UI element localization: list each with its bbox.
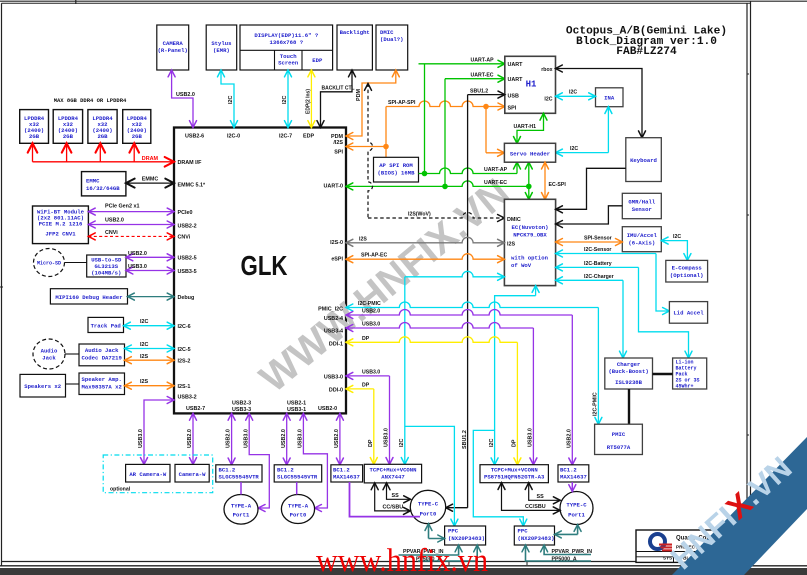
svg-text:TYPE-C: TYPE-C xyxy=(566,502,587,509)
svg-text:DP: DP xyxy=(368,439,374,447)
svg-text:EDP(2 lns): EDP(2 lns) xyxy=(306,89,312,114)
svg-text:SPI-AP-SPI: SPI-AP-SPI xyxy=(388,100,416,106)
svg-text:CAMERA: CAMERA xyxy=(163,40,184,47)
svg-text:TCPC+Mux+VCONN: TCPC+Mux+VCONN xyxy=(370,467,417,474)
svg-text:I2C-6: I2C-6 xyxy=(178,324,191,330)
svg-text:EDP: EDP xyxy=(312,57,323,64)
svg-text:USB2-1: USB2-1 xyxy=(287,401,306,407)
svg-text:I2C-Charger: I2C-Charger xyxy=(584,274,614,280)
svg-text:EDP: EDP xyxy=(303,134,314,140)
svg-text:Stylus: Stylus xyxy=(211,40,232,47)
svg-text:PP5000_A: PP5000_A xyxy=(552,556,577,562)
svg-text:I2C-PMIC: I2C-PMIC xyxy=(593,392,599,416)
svg-text:UART: UART xyxy=(508,77,524,83)
svg-text:Speaker Amp.: Speaker Amp. xyxy=(82,376,122,383)
svg-text:Sensor: Sensor xyxy=(632,206,652,213)
svg-text:RT5077A: RT5077A xyxy=(607,444,631,451)
svg-text:I2C: I2C xyxy=(140,342,148,348)
svg-text:I2C-Sensor: I2C-Sensor xyxy=(584,247,611,253)
svg-text:Track Pad: Track Pad xyxy=(91,322,121,329)
svg-text:EMMC: EMMC xyxy=(142,177,159,183)
svg-text:DDI-0: DDI-0 xyxy=(329,388,343,394)
svg-text:USB2-5: USB2-5 xyxy=(178,256,197,262)
svg-text:CC/SBU: CC/SBU xyxy=(383,505,404,511)
svg-text:(R-Panel): (R-Panel) xyxy=(158,47,188,54)
svg-text:BACKLIT CTL: BACKLIT CTL xyxy=(322,86,355,92)
svg-text:I2S-1: I2S-1 xyxy=(178,384,191,390)
svg-text:Micro-SD: Micro-SD xyxy=(37,261,61,267)
svg-text:UART-AP: UART-AP xyxy=(471,57,495,63)
svg-text:DDI-1: DDI-1 xyxy=(329,342,343,348)
svg-text:CNVi: CNVi xyxy=(105,230,118,236)
svg-text:I2C: I2C xyxy=(489,439,495,447)
svg-text:I2C: I2C xyxy=(228,96,234,104)
svg-text:USB3.0: USB3.0 xyxy=(362,322,380,328)
svg-text:(Optional): (Optional) xyxy=(670,272,704,279)
svg-text:PMIC_I2C: PMIC_I2C xyxy=(318,306,343,312)
svg-text:USB3.0: USB3.0 xyxy=(298,429,304,448)
svg-text:DP: DP xyxy=(512,439,518,447)
svg-text:SS: SS xyxy=(537,494,545,500)
svg-text:USB3-2: USB3-2 xyxy=(178,395,197,401)
svg-text:EMMC 5.1*: EMMC 5.1* xyxy=(178,183,206,189)
svg-text:I2C: I2C xyxy=(544,97,552,103)
svg-text:BC1.2: BC1.2 xyxy=(219,467,236,474)
svg-text:(NX20P3483): (NX20P3483) xyxy=(518,535,555,542)
svg-text:TYPE-C: TYPE-C xyxy=(418,501,439,508)
svg-text:SBU1.2: SBU1.2 xyxy=(470,88,488,94)
svg-text:2GB: 2GB xyxy=(63,133,74,140)
svg-text:Codec DA7219: Codec DA7219 xyxy=(82,355,123,362)
svg-text:EC-SPI: EC-SPI xyxy=(549,182,567,188)
svg-text:DMIC: DMIC xyxy=(380,29,394,36)
svg-text:eSPI: eSPI xyxy=(331,257,343,263)
svg-text:Port0: Port0 xyxy=(420,511,437,518)
svg-text:I2S: I2S xyxy=(140,379,148,385)
svg-text:AP SPI ROM: AP SPI ROM xyxy=(379,162,413,169)
svg-text:USB3.0: USB3.0 xyxy=(243,429,249,448)
svg-text:DISPLAY(EDP)11.6" ?: DISPLAY(EDP)11.6" ? xyxy=(254,32,318,39)
svg-text:CC/SBU: CC/SBU xyxy=(525,504,546,510)
svg-text:USB3-3: USB3-3 xyxy=(232,407,251,413)
svg-text:AR Camera-W: AR Camera-W xyxy=(129,471,167,478)
svg-text:USB2-0: USB2-0 xyxy=(318,406,337,412)
svg-text:USB2-4: USB2-4 xyxy=(324,316,343,322)
svg-text:(BIOS) 16MB: (BIOS) 16MB xyxy=(378,170,416,177)
svg-text:MAX 8GB DDR4 OR LPDDR4: MAX 8GB DDR4 OR LPDDR4 xyxy=(54,97,127,104)
svg-text:BC1.2: BC1.2 xyxy=(333,467,350,474)
svg-text:TYPE-A: TYPE-A xyxy=(288,503,309,510)
svg-text:I2C-Battery: I2C-Battery xyxy=(584,261,612,267)
svg-text:I2C: I2C xyxy=(282,96,288,104)
svg-text:MAX14637: MAX14637 xyxy=(333,474,360,481)
svg-text:USB2-2: USB2-2 xyxy=(178,224,197,230)
svg-text:Audio: Audio xyxy=(41,348,58,355)
svg-text:USB2.0: USB2.0 xyxy=(187,429,193,448)
svg-text:PPC: PPC xyxy=(518,528,529,535)
svg-text:Lid Accel: Lid Accel xyxy=(673,310,704,317)
svg-text:SLGC55545VTR: SLGC55545VTR xyxy=(219,474,260,481)
svg-text:SLGC55545VTR: SLGC55545VTR xyxy=(277,474,318,481)
svg-text:USB3.0: USB3.0 xyxy=(362,369,380,375)
svg-text:UART-EC: UART-EC xyxy=(471,72,494,78)
svg-text:I2S-0: I2S-0 xyxy=(330,240,343,246)
svg-text:Keyboard: Keyboard xyxy=(630,157,657,164)
svg-text:Port1: Port1 xyxy=(568,512,585,519)
svg-text:USB3-0: USB3-0 xyxy=(324,375,343,381)
svg-text:SPI: SPI xyxy=(334,149,343,155)
svg-text:16/32/64GB: 16/32/64GB xyxy=(86,185,120,192)
svg-text:USB2-3: USB2-3 xyxy=(232,401,251,407)
svg-text:I2S: I2S xyxy=(359,236,367,242)
svg-text:PCIe Gen2 x1: PCIe Gen2 x1 xyxy=(105,204,139,210)
svg-text:(EMR): (EMR) xyxy=(213,47,230,54)
svg-text:DMIC: DMIC xyxy=(507,217,521,223)
svg-text:www.hnfix.vn: www.hnfix.vn xyxy=(316,543,488,575)
svg-text:USB2.0: USB2.0 xyxy=(226,429,232,448)
svg-text:USB2.0: USB2.0 xyxy=(334,429,340,448)
svg-text:DP: DP xyxy=(362,382,370,388)
svg-text:PPC: PPC xyxy=(448,528,459,535)
svg-text:TCPC+Mux+VCONN: TCPC+Mux+VCONN xyxy=(491,467,538,474)
svg-text:EMMC: EMMC xyxy=(86,178,100,185)
svg-text:USB3.0: USB3.0 xyxy=(138,429,144,448)
svg-text:USB3.0: USB3.0 xyxy=(528,428,534,447)
svg-text:USB3-5: USB3-5 xyxy=(178,269,197,275)
svg-text:USB2.0: USB2.0 xyxy=(105,217,124,223)
svg-text:SPI-Sensor: SPI-Sensor xyxy=(584,235,612,241)
svg-text:BC1.2: BC1.2 xyxy=(277,467,294,474)
svg-text:I2C-5: I2C-5 xyxy=(178,347,191,353)
svg-text:DRAM I/F: DRAM I/F xyxy=(178,160,203,166)
svg-text:USB3.0: USB3.0 xyxy=(384,428,390,447)
svg-text:USB3-4: USB3-4 xyxy=(324,328,343,334)
svg-text:USB2-6: USB2-6 xyxy=(185,134,204,140)
svg-text:Port0: Port0 xyxy=(290,512,307,519)
svg-text:USB3-1: USB3-1 xyxy=(287,407,306,413)
svg-text:USB2.0: USB2.0 xyxy=(128,251,147,257)
svg-text:IMU/Accel: IMU/Accel xyxy=(627,232,658,239)
svg-text:1366x768 ?: 1366x768 ? xyxy=(270,39,304,46)
svg-text:I2C-PMIC: I2C-PMIC xyxy=(358,301,381,307)
svg-text:2GB: 2GB xyxy=(29,133,40,140)
svg-text:UART-H1: UART-H1 xyxy=(514,124,537,130)
svg-text:PMIC: PMIC xyxy=(612,431,626,438)
svg-text:Port1: Port1 xyxy=(233,512,250,519)
svg-text:PCIe0: PCIe0 xyxy=(178,210,193,216)
svg-text:DP: DP xyxy=(362,336,370,342)
svg-text:USB3.0: USB3.0 xyxy=(128,264,147,270)
svg-text:I2C: I2C xyxy=(569,90,577,96)
svg-text:UART: UART xyxy=(508,62,524,68)
svg-text:45Whr+: 45Whr+ xyxy=(676,384,694,390)
svg-text:BC1.2: BC1.2 xyxy=(560,467,577,474)
svg-text:SPI: SPI xyxy=(508,106,517,112)
svg-text:FAB#LZ274: FAB#LZ274 xyxy=(616,46,677,58)
svg-text:/I2S: /I2S xyxy=(333,140,343,146)
svg-text:I2C: I2C xyxy=(140,319,148,325)
svg-text:(Buck-Boost): (Buck-Boost) xyxy=(608,368,648,375)
svg-text:ANX7447: ANX7447 xyxy=(381,474,405,481)
svg-text:E-Compass: E-Compass xyxy=(672,265,703,272)
svg-text:I2S: I2S xyxy=(507,241,515,247)
svg-text:SS: SS xyxy=(392,493,400,499)
svg-text:optional: optional xyxy=(110,486,131,492)
svg-text:USB: USB xyxy=(508,93,519,99)
svg-text:Backlight: Backlight xyxy=(340,29,370,36)
svg-text:PPVAR_PWR_IN: PPVAR_PWR_IN xyxy=(552,549,593,555)
svg-text:I2S(WoV): I2S(WoV) xyxy=(408,211,431,217)
svg-text:Debug: Debug xyxy=(178,295,195,301)
svg-text:(6-Axis): (6-Axis) xyxy=(628,240,655,247)
svg-text:I2S: I2S xyxy=(140,354,148,360)
svg-text:INA: INA xyxy=(604,95,615,102)
svg-text:(Dual?): (Dual?) xyxy=(380,36,404,43)
svg-text:USB2.0: USB2.0 xyxy=(176,92,195,98)
svg-text:rbox: rbox xyxy=(541,67,552,73)
svg-text:UART-EC: UART-EC xyxy=(484,180,507,186)
svg-text:PCIE M.2 1216: PCIE M.2 1216 xyxy=(39,220,83,227)
svg-text:EC(Nuvoton): EC(Nuvoton) xyxy=(512,224,549,231)
svg-text:USB2.0: USB2.0 xyxy=(566,429,572,448)
svg-text:USB2-7: USB2-7 xyxy=(186,406,205,412)
svg-text:I2S-2: I2S-2 xyxy=(178,359,191,365)
svg-text:Jack: Jack xyxy=(42,355,56,362)
svg-text:TYPE-A: TYPE-A xyxy=(231,503,252,510)
svg-text:UART-AP: UART-AP xyxy=(484,167,508,173)
svg-text:(NX20P3483): (NX20P3483) xyxy=(448,535,485,542)
svg-text:I2C-7: I2C-7 xyxy=(279,134,292,140)
svg-text:I2C: I2C xyxy=(399,439,405,447)
svg-text:GMR/Hall: GMR/Hall xyxy=(628,199,655,206)
svg-text:I2C: I2C xyxy=(570,146,578,152)
svg-text:USB2.0: USB2.0 xyxy=(281,429,287,448)
svg-text:Screen: Screen xyxy=(278,60,299,67)
svg-text:SBU1.2: SBU1.2 xyxy=(462,430,468,449)
svg-text:MIPI160 Debug Header: MIPI160 Debug Header xyxy=(55,294,122,301)
svg-text:Max98357A x2: Max98357A x2 xyxy=(82,384,123,391)
svg-text:of WoV: of WoV xyxy=(511,262,532,269)
svg-text:DRAM: DRAM xyxy=(142,156,159,162)
svg-text:UART-0: UART-0 xyxy=(324,184,343,190)
svg-text:with option: with option xyxy=(511,255,549,262)
svg-text:Servo Header: Servo Header xyxy=(510,151,550,158)
svg-text:I2C-0: I2C-0 xyxy=(227,134,240,140)
svg-text:SPI-AP-EC: SPI-AP-EC xyxy=(361,253,387,259)
svg-text:2GB: 2GB xyxy=(132,133,143,140)
svg-text:ISL9238B: ISL9238B xyxy=(615,379,642,386)
svg-text:H1: H1 xyxy=(526,80,537,90)
svg-text:PS8751HQFN52GTR-A3: PS8751HQFN52GTR-A3 xyxy=(484,474,545,481)
svg-text:JFP2 CNV1: JFP2 CNV1 xyxy=(45,231,76,238)
svg-text:Camera-W: Camera-W xyxy=(179,471,206,478)
svg-text:2GB: 2GB xyxy=(97,133,108,140)
svg-text:MAX14637: MAX14637 xyxy=(560,474,587,481)
svg-text:USB2.0: USB2.0 xyxy=(362,309,380,315)
svg-text:CNVi: CNVi xyxy=(178,235,191,241)
svg-text:PDM: PDM xyxy=(356,89,362,101)
svg-text:NPCK79_OBX: NPCK79_OBX xyxy=(513,232,547,239)
svg-text:GLK: GLK xyxy=(241,250,288,281)
svg-text:Speakers x2: Speakers x2 xyxy=(24,383,62,390)
svg-text:Charger: Charger xyxy=(617,361,641,368)
svg-text:I2C: I2C xyxy=(673,234,681,240)
svg-text:(104MB/s): (104MB/s) xyxy=(91,270,121,277)
svg-text:Audio Jack: Audio Jack xyxy=(85,347,119,354)
